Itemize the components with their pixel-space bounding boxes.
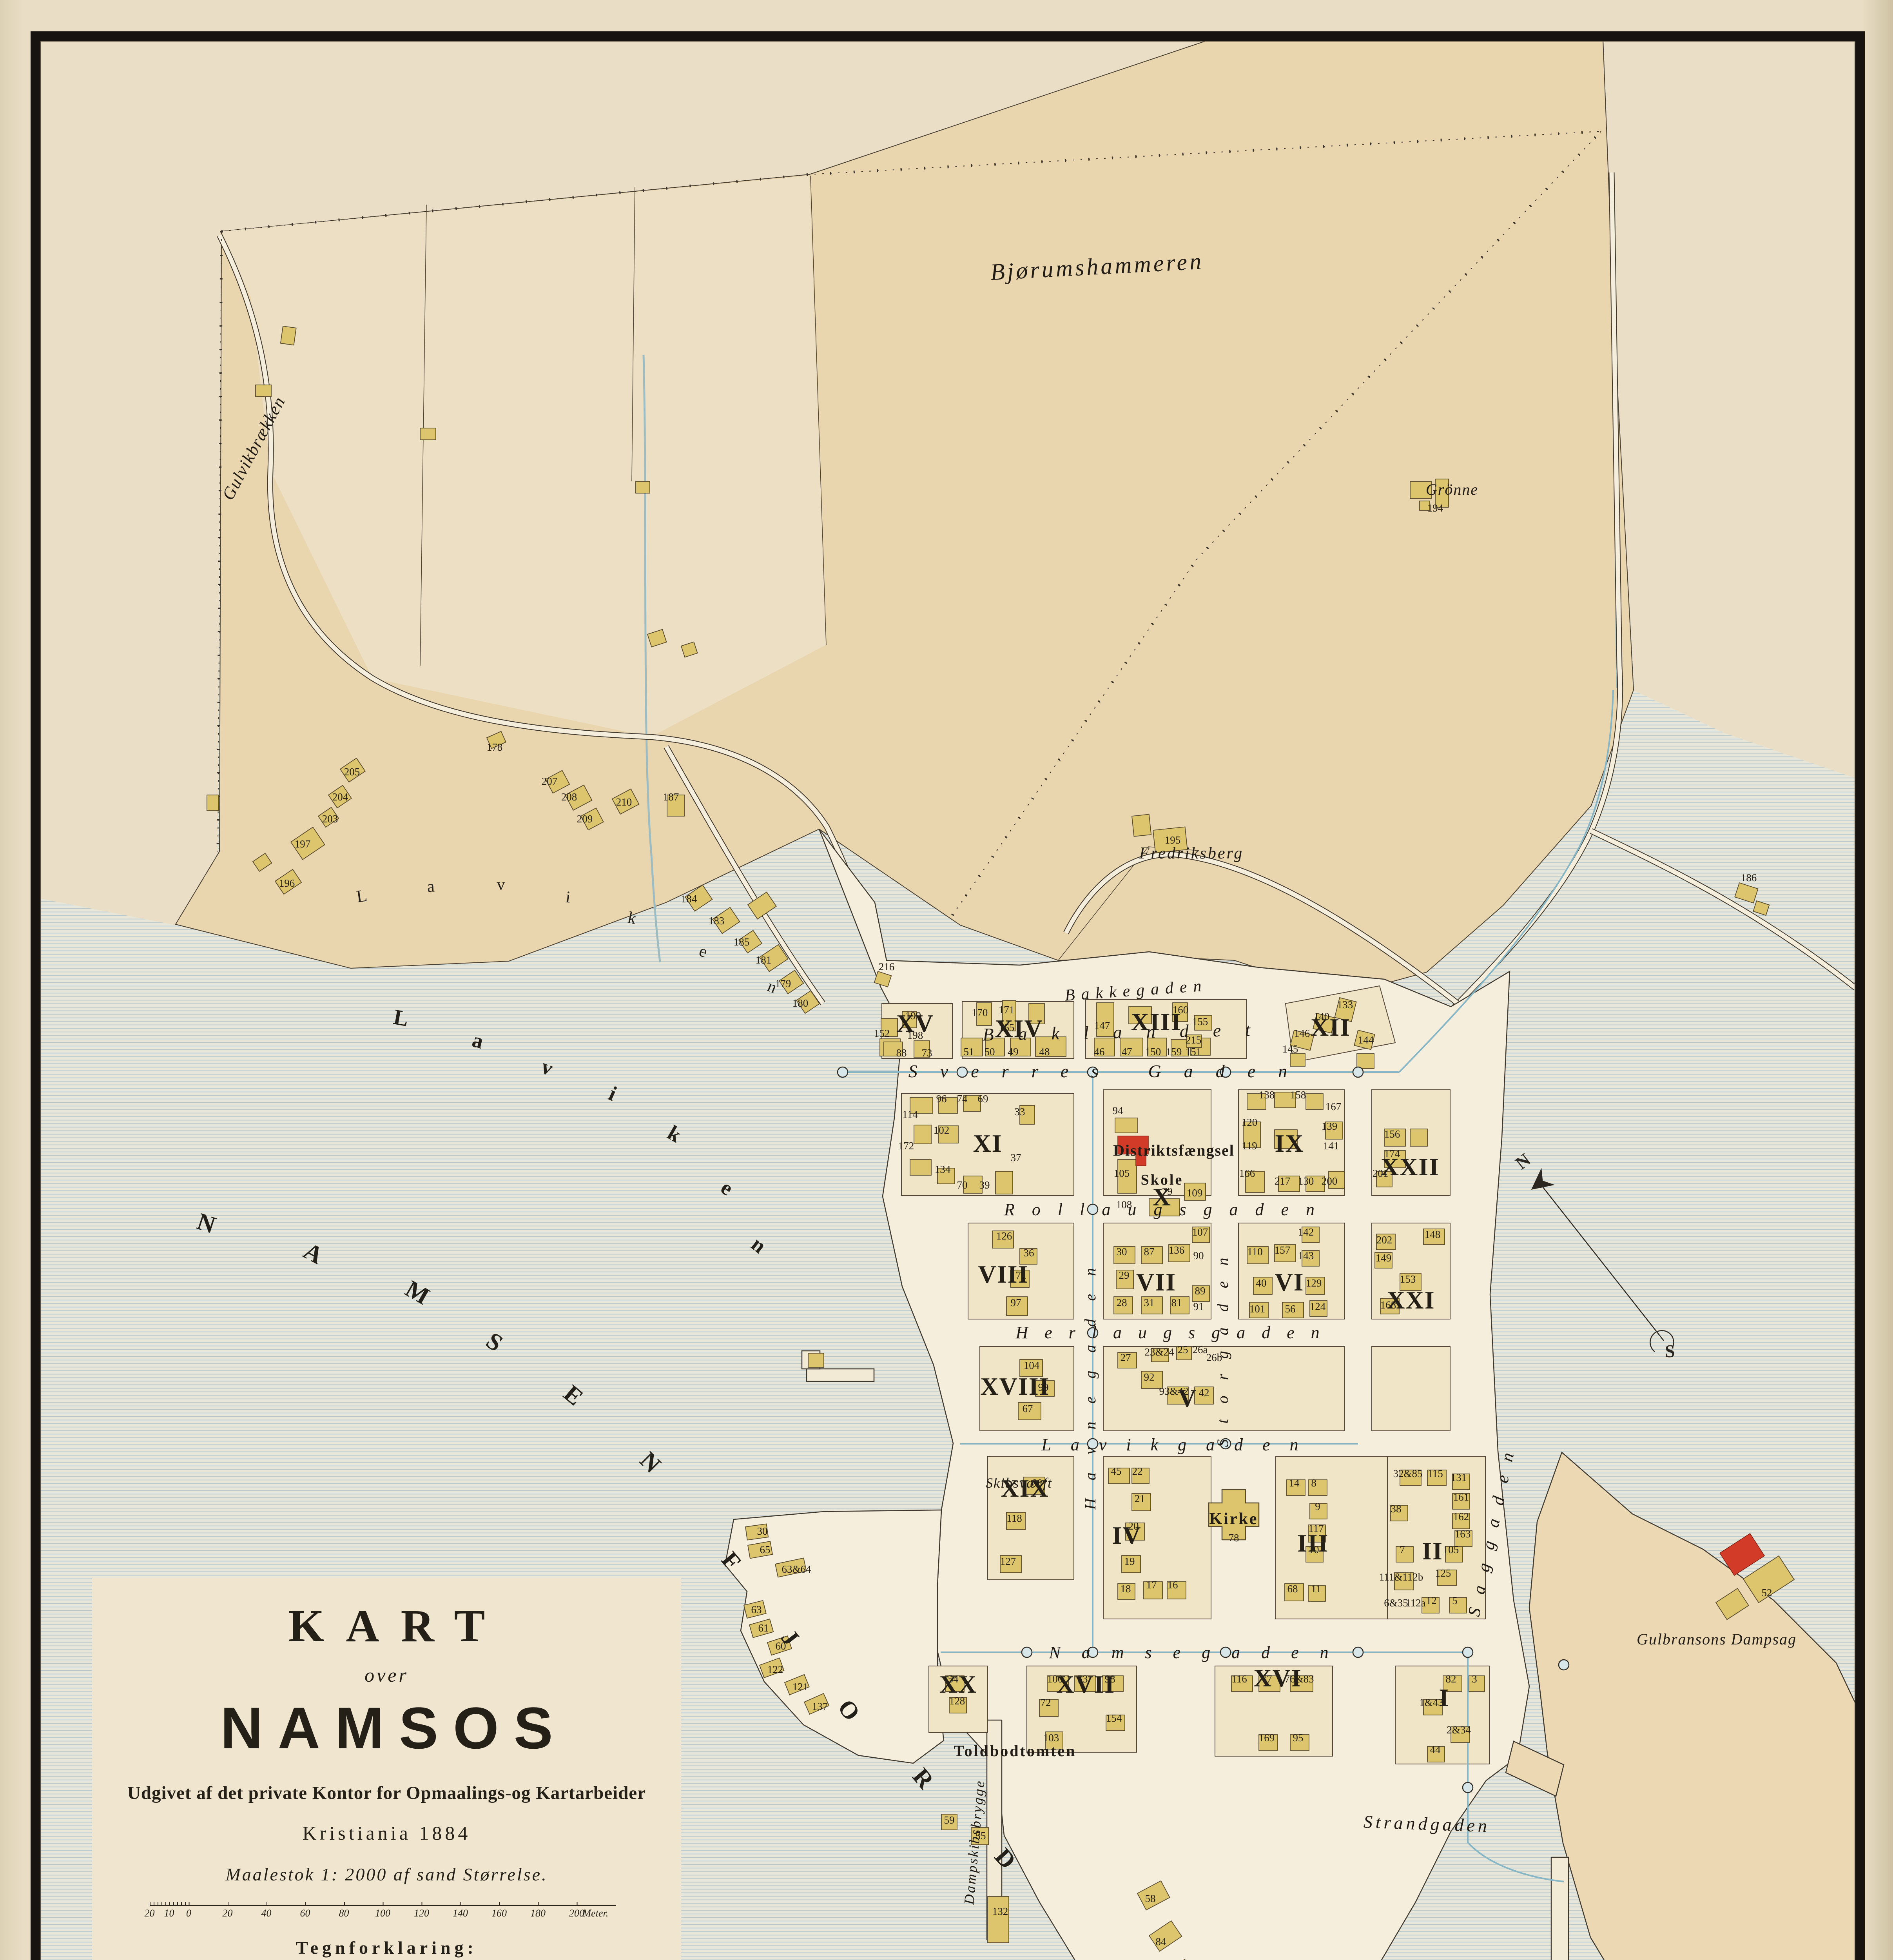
map-label: IX: [1275, 1129, 1304, 1157]
building-number: 146: [1294, 1027, 1310, 1039]
building-number: 183: [709, 915, 725, 927]
building: [988, 1896, 1009, 1943]
building-number: 6&35: [1384, 1597, 1408, 1609]
building-number: 101: [1249, 1303, 1266, 1315]
building-number: 107: [1192, 1226, 1208, 1238]
building: [256, 385, 271, 397]
building-number: 120: [1242, 1116, 1258, 1128]
building-number: 78: [1229, 1532, 1239, 1544]
building-number: 33: [1015, 1106, 1025, 1118]
brandkum: [1353, 1067, 1363, 1077]
building-number: 30: [757, 1525, 768, 1537]
building-number: 194: [1427, 502, 1443, 514]
scale-statement: Maalestok 1: 2000 af sand Størrelse.: [92, 1864, 681, 1885]
building: [808, 1353, 824, 1367]
building-number: 95: [1293, 1732, 1304, 1744]
scale-tick: 20: [145, 1907, 155, 1919]
map-label: VII: [1136, 1268, 1176, 1296]
building-number: 69: [978, 1093, 988, 1105]
building-number: 200: [1322, 1175, 1338, 1187]
building-number: 65: [760, 1544, 771, 1555]
building-number: 45: [1111, 1465, 1122, 1477]
building-number: 37: [1011, 1152, 1021, 1163]
building-number: 216: [879, 961, 895, 973]
title-block: KART over NAMSOS Udgivet af det private …: [92, 1578, 681, 1960]
map-label: Toldbodtomten: [954, 1742, 1077, 1760]
building-number: 170: [972, 1007, 988, 1018]
building: [914, 1125, 931, 1144]
building-number: 11: [1311, 1583, 1321, 1595]
building-number: 26b: [1206, 1352, 1222, 1363]
building-number: 114: [902, 1109, 918, 1120]
building-number: 79: [1162, 1185, 1173, 1197]
building-number: 116: [1231, 1673, 1247, 1685]
building-number: 162: [1453, 1511, 1469, 1523]
building-number: 133: [1337, 999, 1353, 1011]
building-number: 124: [1310, 1301, 1326, 1312]
building-number: 36: [1024, 1247, 1034, 1259]
building-number: 202: [1376, 1234, 1393, 1246]
map-label: Gulbransons Dampsag: [1637, 1630, 1797, 1648]
building-number: 165: [999, 1022, 1015, 1033]
building-number: 147: [1094, 1020, 1110, 1031]
map-title-namsos: NAMSOS: [92, 1694, 681, 1762]
building-number: 54: [948, 1673, 959, 1685]
building-number: 50: [985, 1046, 995, 1058]
building-number: 70: [957, 1179, 968, 1191]
building-number: 38: [1391, 1503, 1402, 1515]
building-number: 151: [1186, 1046, 1202, 1058]
scale-tick: 200: [569, 1907, 584, 1919]
building-number: 89: [1195, 1285, 1206, 1297]
building-number: 139: [1322, 1120, 1338, 1132]
building-number: 5: [1452, 1595, 1458, 1606]
brandkum: [1353, 1647, 1363, 1657]
building-number: 155: [1192, 1016, 1208, 1027]
building-number: 71: [1016, 1269, 1026, 1281]
building-number: 26a: [1193, 1344, 1208, 1356]
publisher-line: Udgivet af det private Kontor for Opmaal…: [92, 1782, 681, 1804]
building-number: 105: [1114, 1167, 1130, 1179]
building-number: 148: [1425, 1229, 1441, 1240]
brandkum: [838, 1067, 848, 1077]
building-number: 181: [756, 954, 772, 966]
building-number: 92: [1144, 1371, 1155, 1383]
building-number: 55: [976, 1830, 986, 1842]
building-number: 74: [957, 1093, 968, 1105]
scale-bar: 2010020406080100120140160180200 Meter.: [150, 1898, 624, 1922]
building-number: 174: [1384, 1148, 1400, 1160]
map-label: Distriktsfængsel: [1113, 1142, 1235, 1159]
building-number: 111&112b: [1379, 1571, 1423, 1583]
building: [995, 1171, 1013, 1194]
building: [281, 326, 296, 345]
building-number: 105: [1443, 1544, 1459, 1555]
building-number: 25: [1178, 1344, 1188, 1356]
building-number: 18: [1121, 1583, 1131, 1595]
scale-tick: 40: [261, 1907, 272, 1919]
building-number: 208: [561, 791, 577, 803]
building-number: 125: [1435, 1567, 1451, 1579]
building: [636, 481, 650, 493]
map-label: Storgaden: [1214, 1242, 1231, 1447]
building-number: 56: [1285, 1303, 1296, 1315]
building-number: 163: [1455, 1528, 1471, 1540]
building-number: 145: [1282, 1043, 1298, 1055]
scale-tick: 20: [223, 1907, 233, 1919]
building-number: 42: [1199, 1387, 1209, 1399]
building-number: 158: [1290, 1089, 1306, 1101]
brandkum: [1463, 1647, 1473, 1657]
building-number: 31: [1144, 1297, 1155, 1308]
building-number: 203: [322, 813, 338, 825]
map-label: Fredriksberg: [1139, 844, 1244, 862]
building-number: 52: [1762, 1587, 1772, 1599]
building-number: 84: [1156, 1936, 1167, 1947]
brandkum: [1559, 1660, 1569, 1670]
map-label: Herlaugsgaden: [1015, 1323, 1336, 1342]
building-number: 22: [1132, 1465, 1143, 1477]
scale-tick: 80: [339, 1907, 349, 1919]
building-number: 61: [758, 1622, 769, 1634]
map-label: Kirke: [1209, 1510, 1258, 1528]
building-number: 110: [1247, 1246, 1263, 1258]
scale-tick: 10: [164, 1907, 174, 1919]
building-number: 27: [1121, 1352, 1131, 1363]
map-label: a: [426, 877, 435, 896]
building-number: 186: [1741, 872, 1757, 884]
building-number: 90: [1193, 1250, 1204, 1261]
building-number: 8: [1311, 1477, 1316, 1489]
building: [1357, 1054, 1374, 1069]
outside-boundary-ne: [1604, 41, 1855, 778]
building: [420, 428, 436, 440]
building-number: 157: [1275, 1244, 1291, 1256]
building-number: 143: [1298, 1250, 1314, 1261]
building-number: 136: [1169, 1244, 1185, 1256]
building-number: 87: [1144, 1246, 1155, 1258]
building-number: 7: [1400, 1544, 1405, 1555]
building-number: 119: [1242, 1140, 1257, 1152]
building-number: 63&64: [781, 1563, 811, 1575]
compass-south-label: S: [1665, 1341, 1675, 1361]
building-number: 77: [1262, 1673, 1272, 1685]
building-number: 117: [1308, 1523, 1324, 1534]
building-number: 168: [1380, 1299, 1396, 1311]
building-number: 76&83: [1284, 1673, 1314, 1685]
building-number: 93&42: [1159, 1385, 1188, 1397]
building-number: 204: [332, 791, 348, 803]
building-number: 141: [1323, 1140, 1339, 1152]
building-number: 58: [1145, 1893, 1156, 1904]
building-number: 142: [1298, 1226, 1314, 1238]
building-number: 130: [1298, 1175, 1314, 1187]
building-number: 32&85: [1393, 1468, 1422, 1479]
map-label: Havnegaden: [1081, 1250, 1099, 1510]
building-number: 102: [934, 1124, 950, 1136]
building: [1132, 814, 1151, 836]
building-number: 180: [792, 997, 809, 1009]
building-number: 172: [898, 1140, 914, 1152]
building-number: 100: [1047, 1673, 1063, 1685]
brandkum: [1463, 1782, 1473, 1793]
building-number: 103: [1043, 1732, 1059, 1744]
map-sheet: N S Laviken NAMSENFJORD Laviken Bakkegad…: [0, 0, 1893, 1960]
building-number: 184: [681, 893, 697, 905]
building-number: 63: [751, 1604, 762, 1615]
building-number: 207: [542, 775, 558, 787]
scale-tick: 0: [186, 1907, 191, 1919]
building-number: 12: [1426, 1595, 1437, 1606]
building-number: 195: [1165, 834, 1181, 846]
scale-tick: 100: [375, 1907, 390, 1919]
building-number: 53: [1077, 1673, 1088, 1685]
building-number: 19: [1124, 1555, 1135, 1567]
building-number: 134: [935, 1163, 951, 1175]
building-number: 3: [1472, 1673, 1477, 1685]
building-number: 198: [907, 1029, 923, 1041]
building-number: 9: [1315, 1501, 1320, 1512]
building-number: 51: [964, 1046, 974, 1058]
building-number: 21: [1135, 1493, 1145, 1504]
building-number: 215: [1186, 1034, 1202, 1046]
building-number: 72: [1041, 1697, 1051, 1708]
building-number: 140: [1314, 1011, 1330, 1022]
building-number: 98: [1105, 1673, 1115, 1685]
building-number: 138: [1259, 1089, 1275, 1101]
building-number: 132: [992, 1906, 1008, 1917]
building-number: 126: [996, 1230, 1012, 1242]
map-label: Namsegaden: [1048, 1643, 1349, 1662]
building-number: 46: [1094, 1046, 1105, 1058]
building-number: 91: [1193, 1301, 1204, 1312]
building-number: 205: [344, 766, 360, 778]
map-label: II: [1422, 1537, 1443, 1565]
building-number: 44: [1430, 1744, 1441, 1755]
building-number: 179: [775, 978, 791, 989]
building-number: 1&43: [1419, 1697, 1443, 1708]
building-number: 115: [1427, 1468, 1443, 1479]
building-number: 20: [1128, 1520, 1139, 1532]
building-number: 127: [1000, 1555, 1016, 1567]
building-number: 96: [936, 1093, 947, 1105]
building-number: 104: [1024, 1359, 1040, 1371]
building: [1306, 1094, 1323, 1109]
building: [910, 1160, 931, 1175]
building-number: 153: [1400, 1273, 1416, 1285]
building-number: 108: [1116, 1199, 1132, 1210]
building-number: 109: [1187, 1187, 1203, 1199]
building-number: 112a: [1405, 1597, 1425, 1609]
building-number: 94: [1113, 1105, 1124, 1116]
brandkum: [1022, 1647, 1032, 1657]
map-label: Grönne: [1426, 481, 1478, 498]
building-number: 131: [1451, 1472, 1467, 1483]
building-number: 199: [905, 1010, 921, 1022]
building-number: 210: [616, 796, 632, 808]
building-number: 159: [1166, 1046, 1182, 1058]
building-number: 169: [1259, 1732, 1275, 1744]
building-number: 88: [896, 1047, 907, 1059]
building-number: 156: [1384, 1128, 1400, 1140]
building-number: 150: [1145, 1046, 1161, 1058]
building-number: 40: [1256, 1277, 1267, 1289]
building-number: 201: [1373, 1167, 1389, 1179]
building-number: 16: [1168, 1579, 1178, 1591]
building-number: 67: [1023, 1403, 1033, 1414]
building-number: 47: [1122, 1046, 1132, 1058]
building: [1410, 1129, 1427, 1146]
building-number: 149: [1376, 1252, 1392, 1264]
building-number: 122: [767, 1664, 783, 1675]
building-number: 48: [1039, 1046, 1050, 1058]
building-number: 97: [1011, 1297, 1021, 1308]
building-number: 99: [1038, 1381, 1049, 1393]
building-number: 17: [1146, 1579, 1157, 1591]
building: [1115, 1118, 1138, 1133]
building-number: 118: [1006, 1512, 1022, 1524]
building-number: 59: [944, 1814, 955, 1826]
building-number: 39: [979, 1179, 990, 1191]
building-number: 82: [1446, 1673, 1456, 1685]
building-number: 68: [1287, 1583, 1298, 1595]
building-number: 81: [1171, 1297, 1182, 1308]
building-number: 209: [577, 813, 593, 825]
building-number: 167: [1325, 1101, 1342, 1112]
building-number: 2&34: [1447, 1724, 1471, 1736]
scale-unit: Meter.: [583, 1907, 609, 1919]
building-number: 196: [279, 877, 295, 889]
map-label: VI: [1275, 1268, 1304, 1296]
building-number: 23&24: [1144, 1346, 1174, 1358]
building-number: 187: [663, 791, 679, 803]
building-number: 178: [487, 741, 503, 753]
building-number: 197: [295, 838, 311, 850]
map-title-kart: KART: [92, 1599, 681, 1653]
building-number: 30: [1117, 1246, 1127, 1258]
building-number: 144: [1358, 1034, 1374, 1046]
building-number: 49: [1008, 1046, 1019, 1058]
building-number: 171: [999, 1004, 1015, 1016]
building-number: 160: [1173, 1004, 1189, 1016]
building-number: 73: [922, 1047, 932, 1059]
building-number: 10: [1309, 1544, 1319, 1555]
scale-tick: 160: [491, 1907, 507, 1919]
map-title-over: over: [92, 1664, 681, 1686]
scale-tick: 140: [453, 1907, 468, 1919]
map-label: Sverres Gaden: [908, 1061, 1310, 1081]
building-number: 217: [1275, 1175, 1291, 1187]
map-label: XI: [973, 1129, 1002, 1157]
legend-title: Tegnforklaring:: [92, 1937, 681, 1958]
scale-tick: 180: [530, 1907, 546, 1919]
scale-tick: 120: [414, 1907, 429, 1919]
place-year: Kristiania 1884: [92, 1822, 681, 1844]
building-number: 121: [792, 1681, 809, 1693]
map-label: v: [497, 876, 505, 894]
building-number: 29: [1119, 1269, 1130, 1281]
building-number: 128: [949, 1695, 965, 1707]
building-number: 129: [1306, 1277, 1322, 1289]
building: [207, 795, 219, 811]
building-number: 152: [874, 1027, 890, 1039]
building-number: 60: [776, 1640, 786, 1652]
building-number: 161: [1453, 1491, 1469, 1503]
building-number: 166: [1239, 1167, 1255, 1179]
scale-tick: 60: [300, 1907, 310, 1919]
building-number: 137: [812, 1700, 828, 1712]
building-number: 154: [1106, 1712, 1122, 1724]
building-number: 28: [1117, 1297, 1127, 1308]
building-number: 14: [1289, 1477, 1300, 1489]
building-number: 66: [1032, 1477, 1042, 1489]
building-number: 185: [734, 936, 750, 948]
